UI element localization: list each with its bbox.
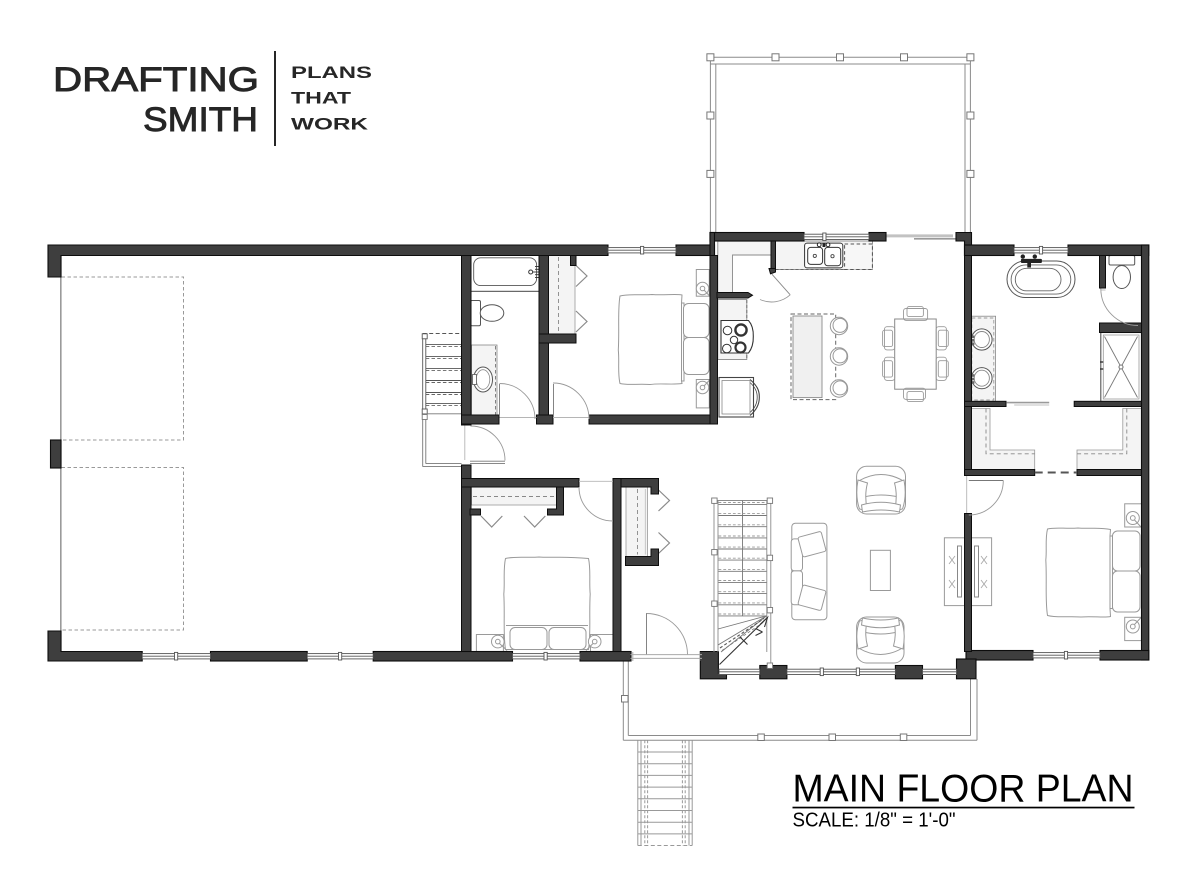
svg-text:THAT: THAT	[291, 89, 352, 108]
svg-text:PLANS: PLANS	[291, 63, 372, 82]
svg-text:SCALE: 1/8" = 1'-0": SCALE: 1/8" = 1'-0"	[793, 808, 956, 831]
svg-text:SMITH: SMITH	[143, 101, 258, 139]
svg-text:WORK: WORK	[291, 115, 369, 134]
svg-text:MAIN FLOOR PLAN: MAIN FLOOR PLAN	[793, 767, 1134, 810]
svg-text:DRAFTING: DRAFTING	[53, 61, 259, 99]
